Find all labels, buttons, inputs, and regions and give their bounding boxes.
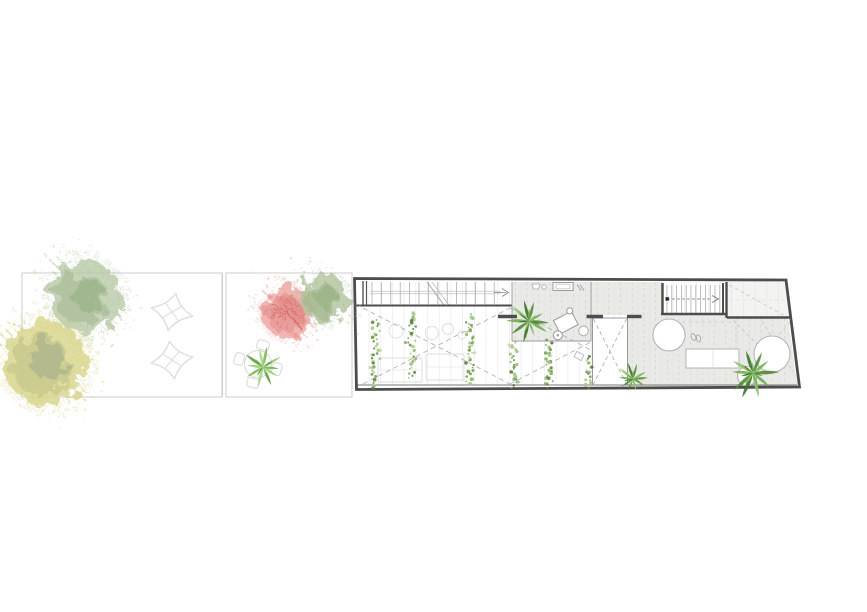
star-paver	[147, 289, 197, 335]
plan-canvas	[0, 0, 867, 612]
star-pavers	[147, 289, 197, 382]
small-tilted-object	[574, 351, 584, 360]
ghost-circle	[389, 324, 403, 338]
sage-tree-small	[300, 274, 348, 322]
star-paver	[148, 338, 195, 382]
ghost-circle	[443, 324, 454, 335]
deck-opening-left	[653, 319, 685, 351]
stool	[579, 326, 589, 336]
stair-start-marker	[666, 297, 669, 300]
floor-plan-drawing	[0, 0, 867, 612]
garden-trees	[3, 260, 348, 404]
stair-treads	[372, 282, 494, 304]
end-room-floor	[728, 282, 791, 317]
entry-stair-corridor	[363, 281, 509, 305]
upper-stair	[666, 285, 720, 313]
light-well-shaft	[593, 318, 628, 385]
yellow-tree	[3, 320, 87, 404]
ghost-circle	[458, 331, 466, 339]
deck-table	[686, 349, 739, 368]
vine-plant	[404, 311, 417, 379]
vine-plant	[544, 339, 554, 389]
lower-level-ghost-furniture	[378, 324, 466, 383]
garden-dining-set	[233, 339, 282, 388]
sage-tree-large	[49, 260, 121, 332]
vine-plant	[368, 319, 381, 390]
